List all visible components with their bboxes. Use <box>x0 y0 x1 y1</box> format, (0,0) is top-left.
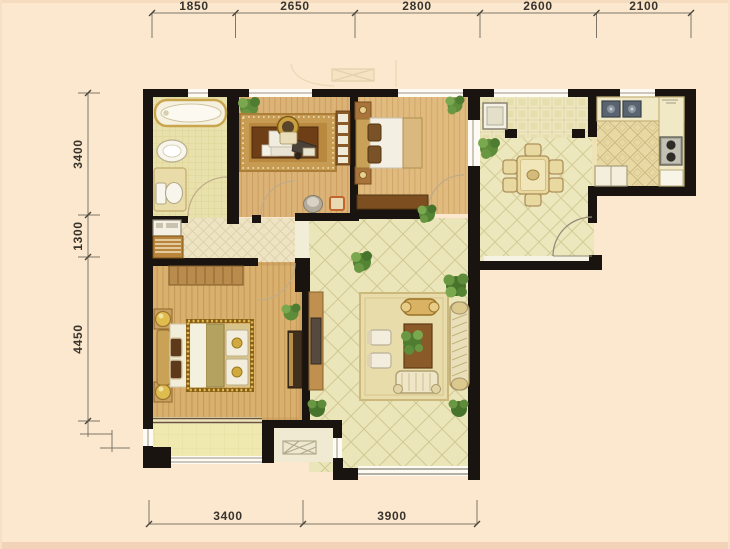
svg-text:3400: 3400 <box>213 509 243 523</box>
svg-text:2600: 2600 <box>523 0 553 13</box>
svg-text:2650: 2650 <box>280 0 310 13</box>
svg-text:1300: 1300 <box>71 221 85 251</box>
svg-text:2100: 2100 <box>629 0 659 13</box>
svg-text:3400: 3400 <box>71 139 85 169</box>
svg-text:1850: 1850 <box>179 0 209 13</box>
svg-text:2800: 2800 <box>402 0 432 13</box>
svg-text:4450: 4450 <box>71 324 85 354</box>
svg-text:3900: 3900 <box>377 509 407 523</box>
